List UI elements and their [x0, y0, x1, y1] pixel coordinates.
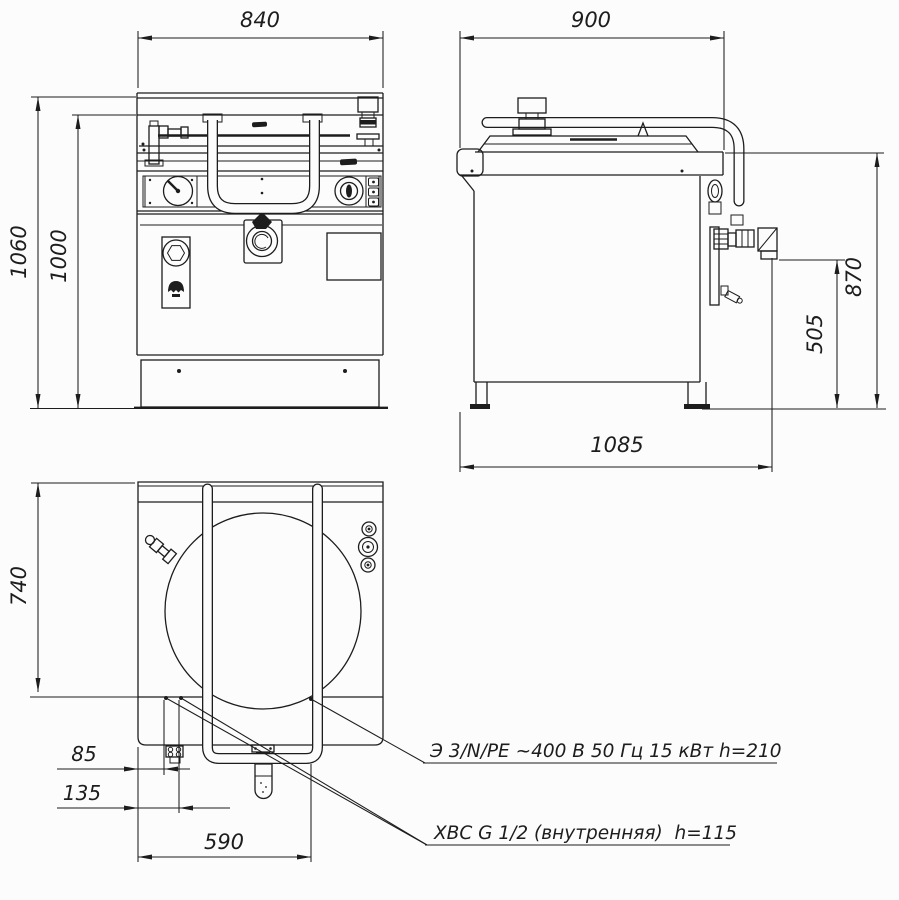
- access-panel: [327, 233, 381, 280]
- dim-label-1085: 1085: [590, 433, 643, 457]
- brand-logo-mark: [252, 122, 267, 128]
- callouts: Э 3/N/PE ~400 В 50 Гц 15 кВт h=210 ХВС G…: [164, 696, 782, 845]
- dim-label-85: 85: [71, 742, 96, 766]
- service-panel: [162, 237, 190, 308]
- drawing-sheet: 840 900 1060 1000 870: [0, 0, 899, 900]
- dim-faucet-height: 870: [725, 153, 884, 408]
- dim-front-width: 840: [138, 8, 383, 88]
- faucet-front: [142, 121, 189, 166]
- electrical-callout: Э 3/N/PE ~400 В 50 Гц 15 кВт h=210: [309, 697, 782, 763]
- dim-label-1060: 1060: [7, 225, 31, 278]
- drain-tap-side: [721, 286, 744, 305]
- dim-overall-height: 1060: [7, 97, 136, 409]
- cold-water-callout: ХВС G 1/2 (внутренняя) h=115: [164, 696, 737, 845]
- dim-inlet-offset-large: 135: [57, 781, 230, 808]
- electrical-callout-text: Э 3/N/PE ~400 В 50 Гц 15 кВт h=210: [429, 741, 782, 762]
- control-knob: [335, 177, 363, 205]
- dim-label-840: 840: [240, 8, 280, 32]
- kick-plate: [134, 360, 388, 408]
- dim-label-590: 590: [204, 830, 244, 854]
- dim-top-depth: 740: [7, 483, 138, 697]
- indicator-lights: [366, 176, 381, 207]
- cold-water-callout-text: ХВС G 1/2 (внутренняя) h=115: [433, 823, 737, 844]
- drain-symbol-icon: [168, 281, 184, 293]
- control-panel: [145, 176, 381, 207]
- lid-handle-side: [487, 123, 739, 202]
- brand-logo-mark: [340, 159, 357, 166]
- worktop-side: [457, 149, 723, 176]
- legs-side: [470, 382, 710, 409]
- drain-valve-front: [244, 212, 282, 263]
- lid-handle-top: [208, 489, 318, 759]
- side-view: [457, 98, 777, 409]
- dim-side-depth: 900: [460, 8, 724, 150]
- faucet-side: [714, 228, 777, 259]
- dim-label-900: 900: [571, 8, 611, 32]
- dim-label-505: 505: [803, 314, 827, 354]
- safety-valve-side: [513, 98, 551, 135]
- dim-label-740: 740: [7, 566, 31, 606]
- dim-worktop-height: 1000: [47, 115, 136, 408]
- front-view: [134, 93, 388, 408]
- temperature-gauge: [145, 176, 197, 207]
- dim-label-135: 135: [63, 781, 101, 805]
- body-top: [138, 482, 383, 745]
- dim-label-1000: 1000: [47, 229, 71, 282]
- faucet-top: [142, 532, 176, 563]
- backsplash-rail: [137, 93, 383, 98]
- dim-label-870: 870: [842, 257, 866, 297]
- body-side: [462, 176, 700, 382]
- dim-handle-span: 590: [138, 830, 311, 857]
- dimensions: 840 900 1060 1000 870: [7, 8, 886, 862]
- safety-valve-front: [357, 97, 379, 146]
- electrical-terminal: [166, 746, 183, 763]
- dim-outlet-height: 505: [779, 260, 845, 408]
- drain-spout-top: [255, 764, 272, 799]
- hinge-fittings: [359, 522, 378, 572]
- dim-overall-depth: 1085: [460, 258, 772, 472]
- kettle-bowl: [165, 513, 361, 709]
